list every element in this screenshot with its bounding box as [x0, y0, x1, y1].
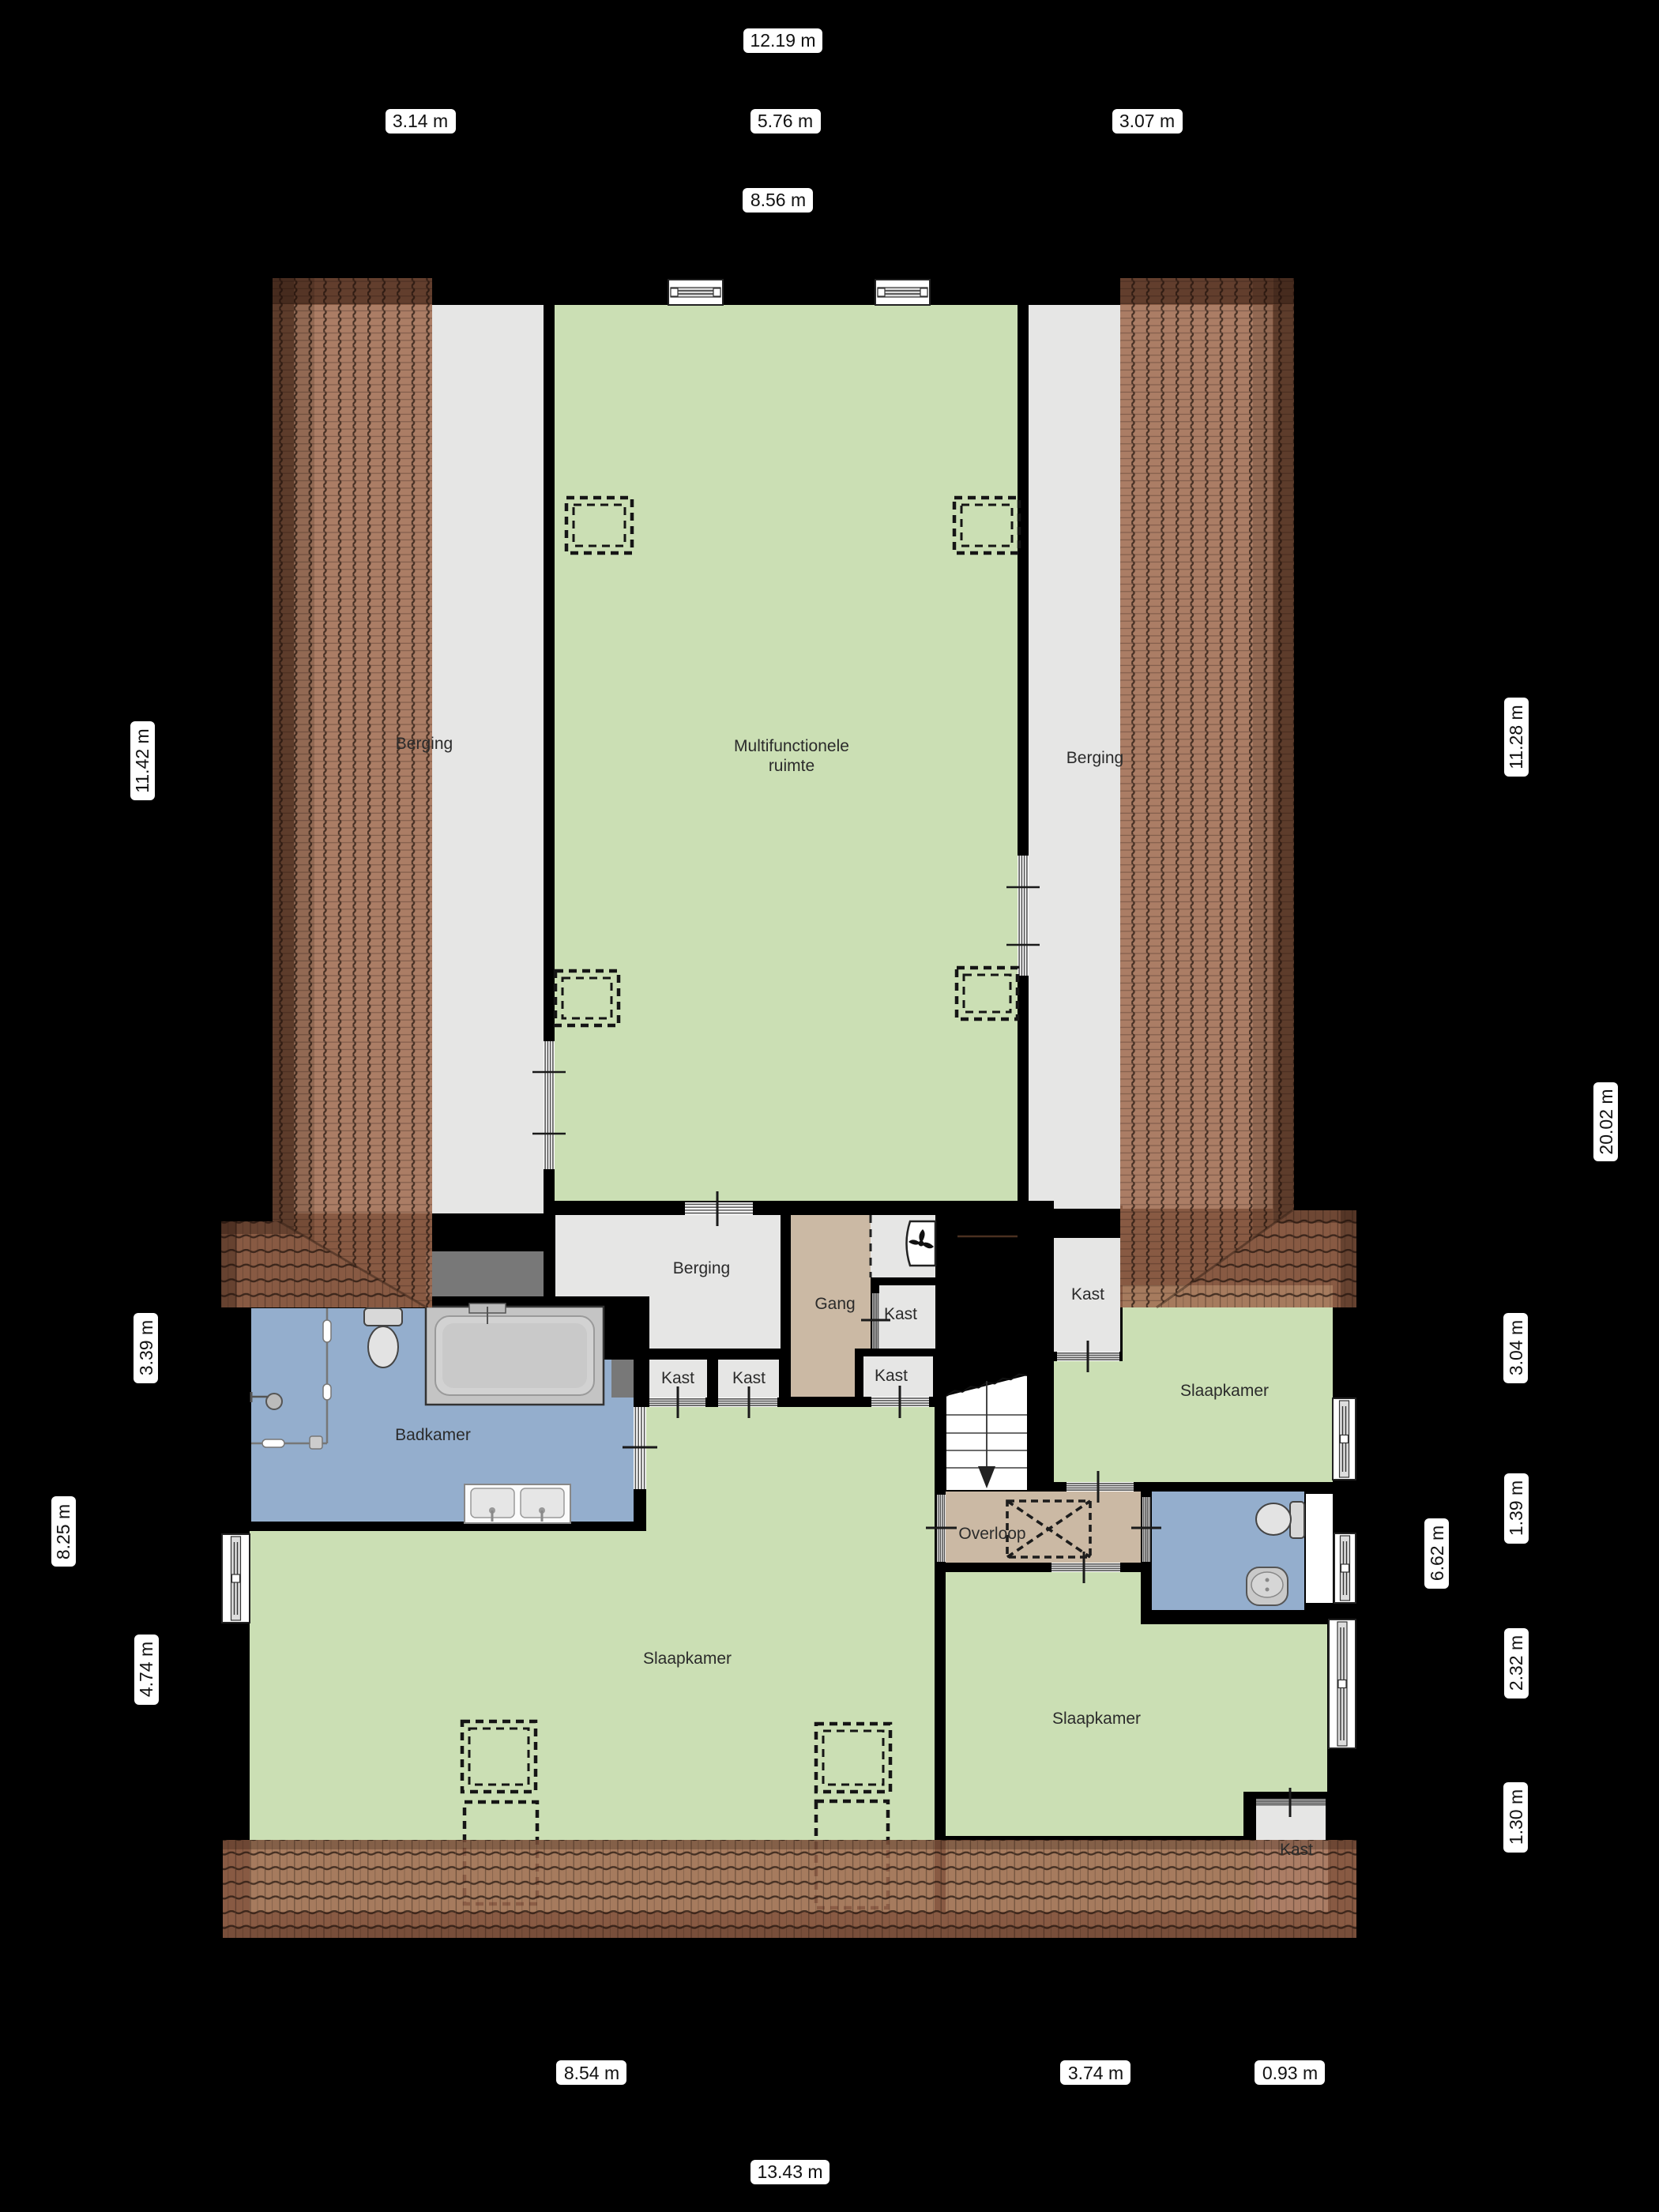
svg-text:ruimte: ruimte — [769, 757, 814, 775]
svg-text:6.62 m: 6.62 m — [1427, 1525, 1447, 1581]
svg-text:20.02 m: 20.02 m — [1596, 1089, 1616, 1154]
svg-text:3.14 m: 3.14 m — [393, 111, 448, 131]
svg-text:3.07 m: 3.07 m — [1119, 111, 1175, 131]
svg-text:11.42 m: 11.42 m — [132, 728, 152, 792]
svg-text:Kast: Kast — [1071, 1285, 1104, 1303]
svg-text:8.25 m: 8.25 m — [53, 1504, 73, 1559]
svg-text:Berging: Berging — [673, 1259, 730, 1277]
svg-text:Gang: Gang — [814, 1295, 855, 1313]
svg-text:Slaapkamer: Slaapkamer — [1180, 1382, 1269, 1400]
svg-text:Slaapkamer: Slaapkamer — [643, 1650, 732, 1668]
svg-text:Berging: Berging — [1066, 749, 1123, 767]
svg-text:3.39 m: 3.39 m — [136, 1320, 156, 1375]
svg-text:Kast: Kast — [1280, 1841, 1313, 1859]
svg-text:Badkamer: Badkamer — [395, 1426, 471, 1444]
svg-text:Overloop: Overloop — [958, 1525, 1025, 1543]
svg-text:Kast: Kast — [661, 1369, 694, 1387]
svg-text:Kast: Kast — [884, 1305, 917, 1323]
svg-text:1.30 m: 1.30 m — [1506, 1789, 1526, 1845]
svg-text:13.43 m: 13.43 m — [757, 2161, 822, 2182]
svg-text:3.04 m: 3.04 m — [1506, 1320, 1526, 1375]
svg-text:1.39 m: 1.39 m — [1506, 1480, 1526, 1536]
svg-text:Kast: Kast — [875, 1367, 908, 1385]
svg-text:2.32 m: 2.32 m — [1506, 1635, 1526, 1691]
svg-text:12.19 m: 12.19 m — [750, 30, 815, 51]
svg-text:8.56 m: 8.56 m — [750, 190, 806, 210]
svg-text:4.74 m: 4.74 m — [136, 1642, 156, 1697]
svg-text:Berging: Berging — [396, 735, 453, 753]
svg-text:Multifunctionele: Multifunctionele — [734, 737, 849, 755]
svg-text:5.76 m: 5.76 m — [758, 111, 813, 131]
svg-text:Slaapkamer: Slaapkamer — [1052, 1710, 1141, 1728]
svg-text:8.54 m: 8.54 m — [564, 2063, 619, 2083]
svg-text:0.93 m: 0.93 m — [1262, 2063, 1318, 2083]
svg-text:Kast: Kast — [732, 1369, 766, 1387]
svg-text:11.28 m: 11.28 m — [1506, 705, 1526, 769]
svg-text:3.74 m: 3.74 m — [1068, 2063, 1123, 2083]
